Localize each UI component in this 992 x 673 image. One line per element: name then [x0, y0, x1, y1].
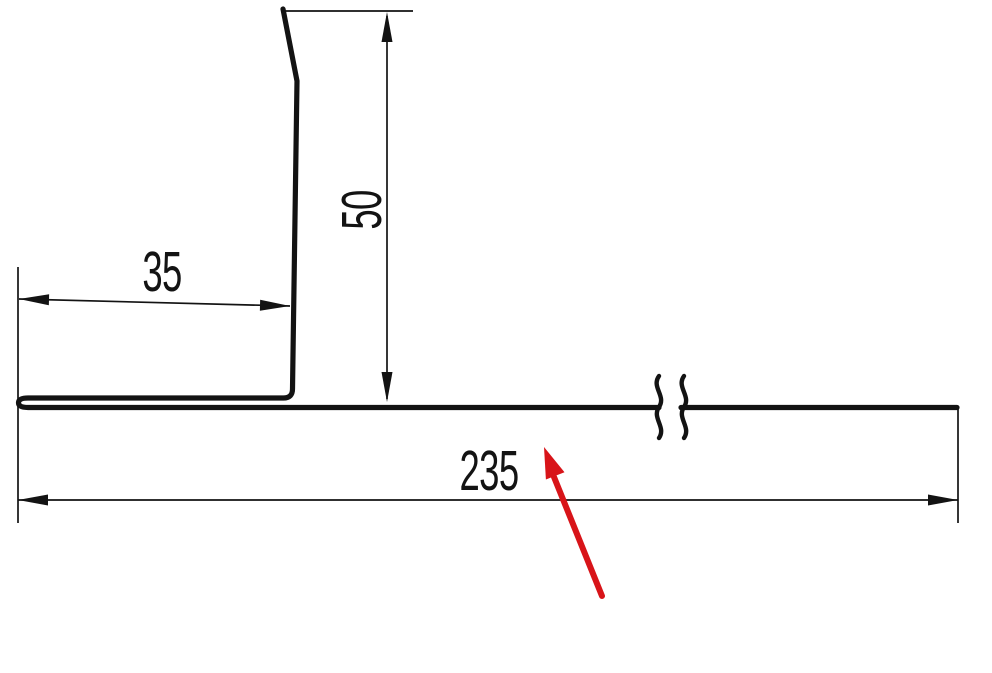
- dim235-arrow-left: [18, 495, 48, 506]
- drawing-canvas: 50 35 235: [0, 0, 992, 673]
- profile-drawing: 50 35 235: [0, 0, 992, 673]
- break-squiggle-right: [682, 376, 687, 438]
- callout-arrow: [544, 447, 602, 596]
- dim50-arrow-up: [382, 12, 393, 42]
- callout-arrow-head-icon: [544, 447, 565, 480]
- callout-arrow-shaft: [554, 477, 602, 596]
- dim50-arrow-down: [382, 372, 393, 402]
- profile-outline: [19, 9, 958, 408]
- dim35-label: 35: [142, 241, 181, 304]
- dimension-hem-width: 35: [18, 241, 290, 523]
- dim35-arrow-left: [19, 294, 49, 306]
- dimension-base-length: 235: [18, 406, 958, 523]
- break-squiggle-left: [657, 376, 662, 438]
- dim35-arrow-right: [260, 300, 290, 312]
- dim50-label: 50: [331, 190, 394, 229]
- break-mark: [657, 376, 687, 438]
- dim235-arrow-right: [928, 495, 958, 506]
- dim235-label: 235: [460, 440, 519, 503]
- dimension-leg-height: 50: [281, 11, 413, 402]
